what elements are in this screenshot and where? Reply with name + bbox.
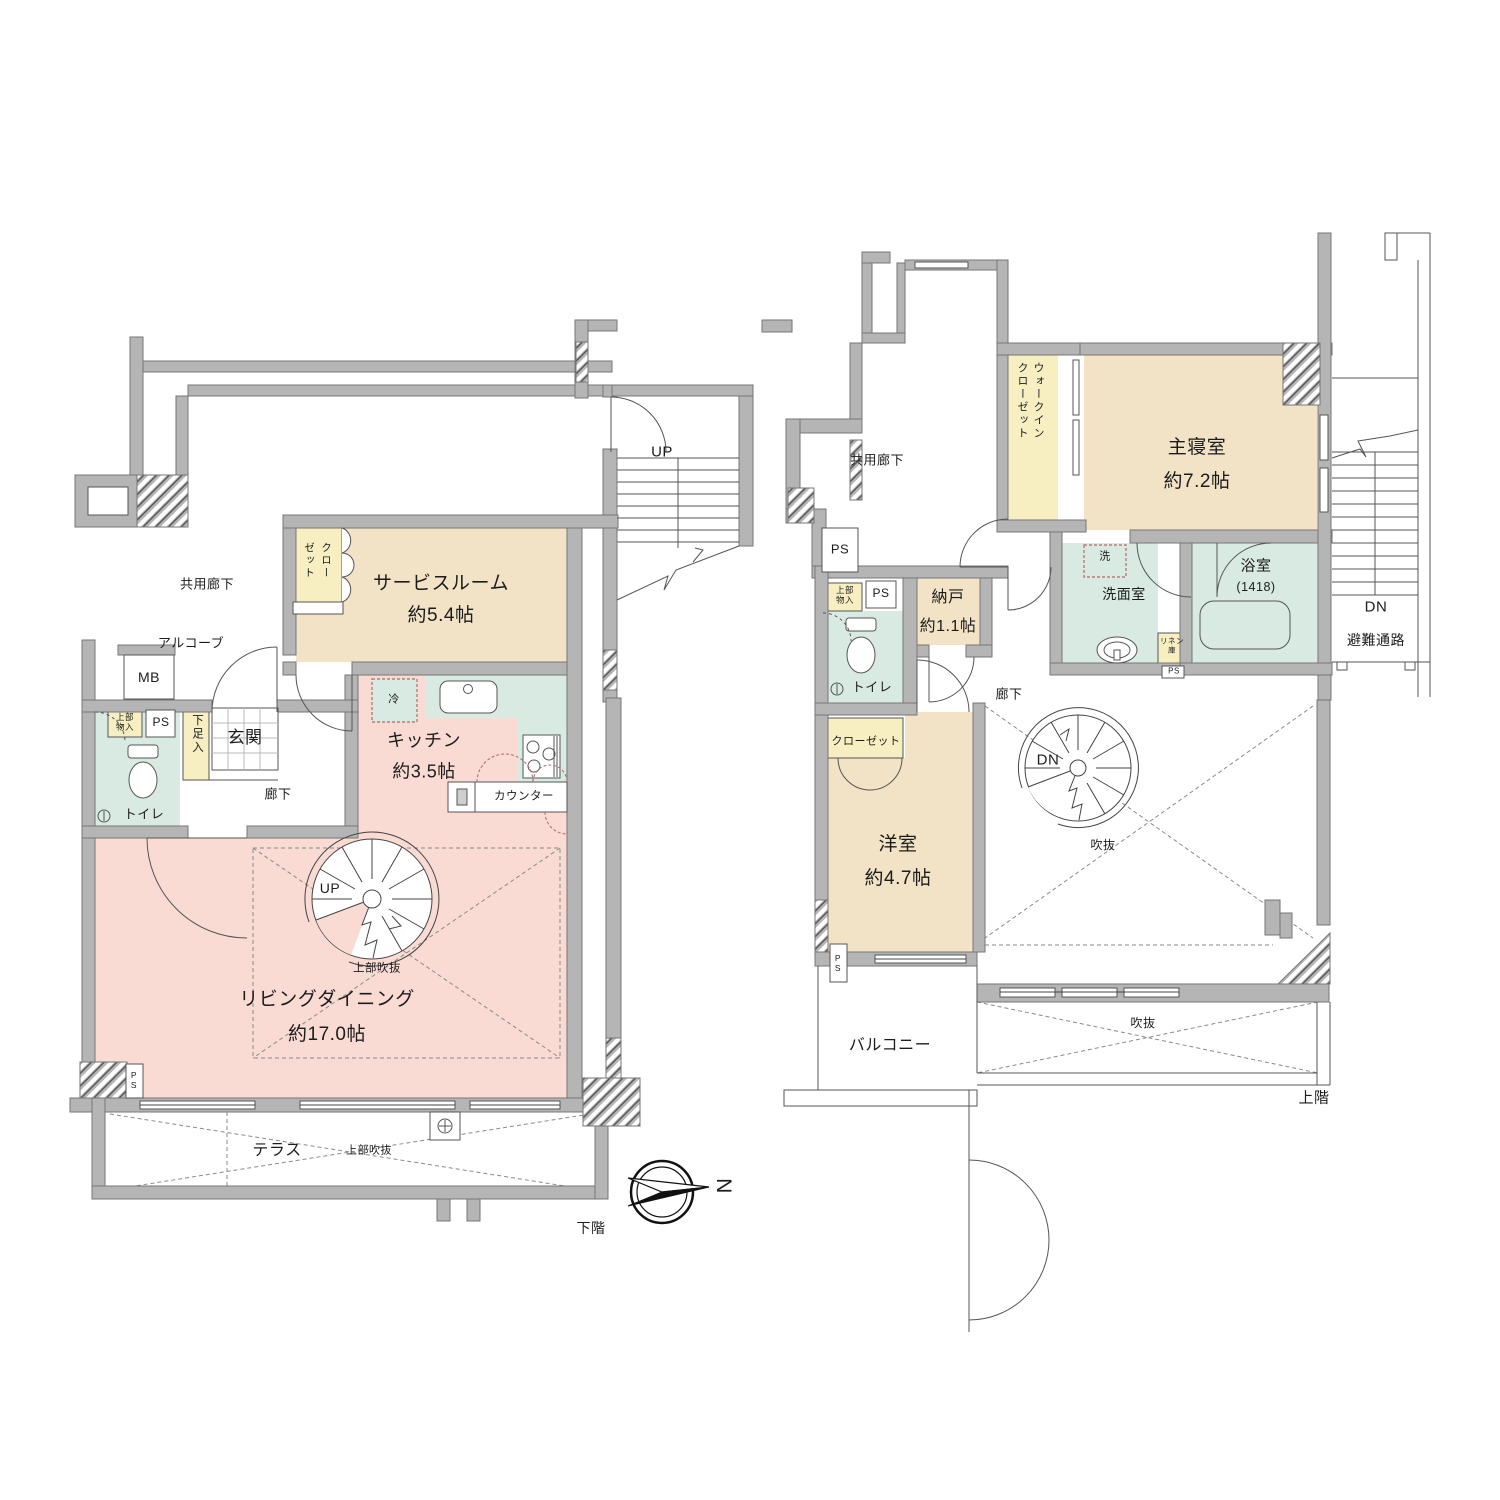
fridge-icon <box>372 679 417 722</box>
evacuation-staircase <box>1332 233 1430 697</box>
compass-icon <box>628 1161 709 1223</box>
up-staircase <box>611 397 739 600</box>
sink-icon <box>440 681 497 713</box>
floor-plan-drawing <box>0 0 1500 1500</box>
bathtub-icon <box>1200 601 1290 649</box>
faucet-icon <box>438 1119 452 1133</box>
floor-plan-page: 共用廊下UPクローゼットサービスルーム約5.4帖アルコーブMB上部 物入PSトイ… <box>0 0 1500 1500</box>
washer-icon <box>1084 545 1126 577</box>
balcony-and-context <box>784 966 1330 1332</box>
spiral-stair-dn <box>1018 708 1138 828</box>
toilet-icon-floor2 <box>846 618 876 631</box>
